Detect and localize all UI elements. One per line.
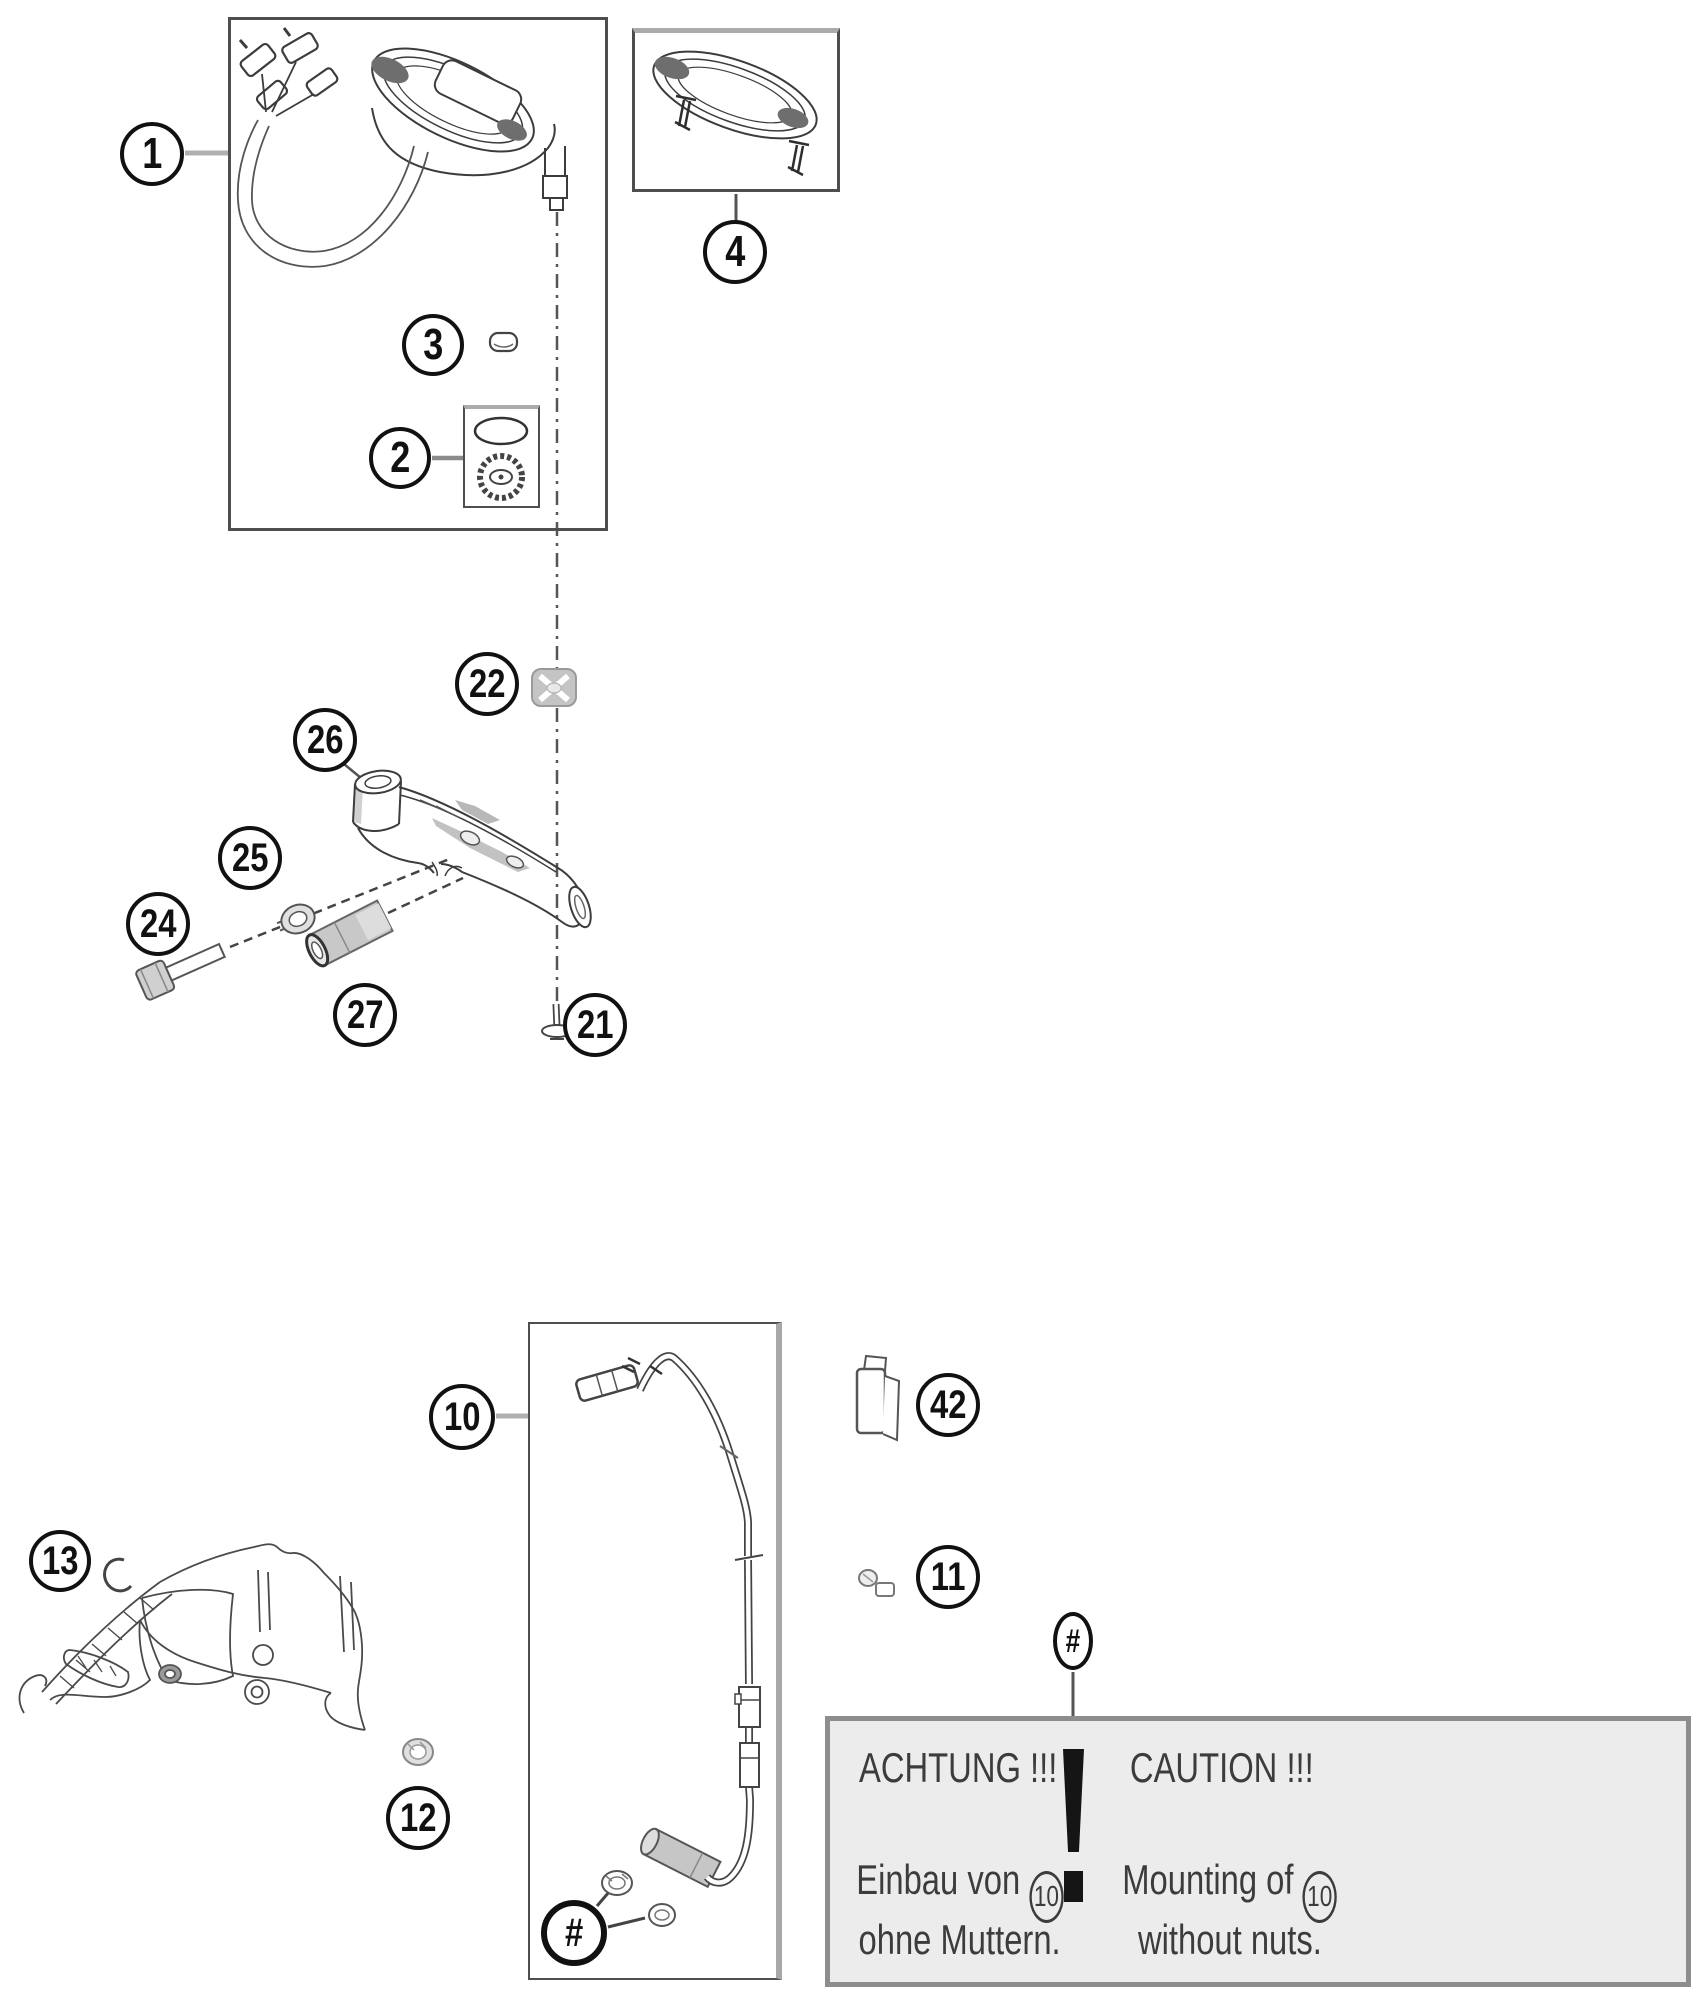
- callout-42[interactable]: 42: [916, 1373, 980, 1437]
- caution-line1-en: Mounting of 10: [1080, 1856, 1380, 1923]
- caution-line2-en: without nuts.: [1080, 1916, 1380, 1964]
- callout-11[interactable]: 11: [916, 1545, 980, 1609]
- group-box-oring-kit: [463, 405, 540, 508]
- callout-hash-cable[interactable]: #: [541, 1900, 607, 1966]
- clip-part-drawing: [105, 1559, 131, 1591]
- callout-13[interactable]: 13: [29, 1530, 91, 1592]
- callout-25[interactable]: 25: [218, 826, 282, 890]
- callout-12[interactable]: 12: [386, 1786, 450, 1850]
- caution-line2-de: ohne Muttern.: [812, 1916, 1108, 1964]
- exclamation-dot-icon: [1064, 1871, 1083, 1902]
- callout-10[interactable]: 10: [429, 1384, 495, 1450]
- callout-22[interactable]: 22: [455, 652, 519, 716]
- nut11-drawing: [859, 1570, 894, 1596]
- callout-3[interactable]: 3: [402, 314, 464, 376]
- callout-hash-caution[interactable]: #: [1053, 1612, 1093, 1670]
- group-box-cover: [632, 28, 840, 192]
- nut12-drawing: [403, 1739, 433, 1765]
- caution-title-de: ACHTUNG !!!: [818, 1744, 1098, 1792]
- spacer-drawing: [302, 901, 392, 969]
- caution-title-en: CAUTION !!!: [1082, 1744, 1362, 1792]
- callout-1[interactable]: 1: [120, 122, 184, 186]
- callout-2[interactable]: 2: [369, 427, 431, 489]
- callout-21[interactable]: 21: [563, 993, 627, 1057]
- callout-4[interactable]: 4: [703, 220, 767, 284]
- callout-27[interactable]: 27: [333, 983, 397, 1047]
- clamp-plate-drawing: [857, 1356, 899, 1440]
- group-box-cable: [528, 1322, 782, 1980]
- damper-nut-drawing: [532, 669, 576, 706]
- callout-24[interactable]: 24: [126, 892, 190, 956]
- callout-26[interactable]: 26: [293, 708, 357, 772]
- instrument-bracket-drawing: [353, 768, 595, 930]
- parts-diagram-canvas: 1 2 3 4 22 26 25 24 27 21 10 42 11 13 12…: [0, 0, 1700, 2003]
